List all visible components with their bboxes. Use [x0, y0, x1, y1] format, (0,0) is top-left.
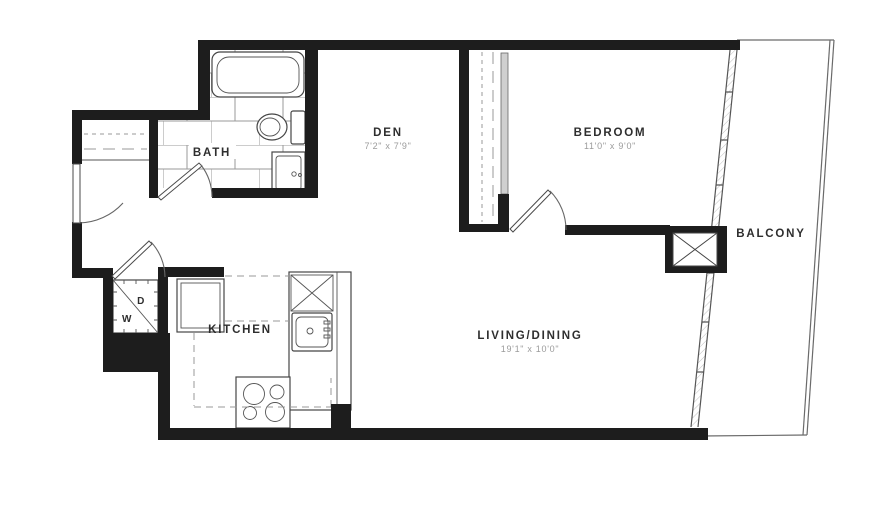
bedroom-name: BEDROOM [574, 127, 647, 139]
wall-closet-top [72, 110, 210, 120]
walls [72, 40, 740, 440]
wall-bath-south [212, 188, 318, 198]
wall-bedroom-south [565, 225, 670, 235]
wall-kitchen-north [158, 267, 224, 277]
entry-closet [82, 134, 149, 160]
kitchen-name: KITCHEN [208, 324, 272, 336]
wall-entry-link [72, 268, 103, 278]
structural-column [673, 233, 717, 266]
den-name: DEN [373, 127, 403, 139]
label-bath: BATH [193, 147, 231, 159]
wall-left-upper [72, 110, 82, 164]
wall-bath-west-lower [149, 118, 158, 198]
wall-bottom [158, 428, 708, 440]
washer-letter: W [122, 314, 132, 325]
floorplan-canvas: D W [0, 0, 896, 512]
label-bedroom: BEDROOM 11'0" x 9'0" [574, 127, 647, 151]
dryer-letter: D [137, 296, 145, 307]
kitchen-sink [292, 313, 332, 351]
entry-door [73, 164, 123, 223]
laundry-closet-door [112, 241, 165, 279]
closet-sliding-door [501, 53, 508, 194]
washer-dryer-unit: D W [113, 280, 158, 333]
balcony-name: BALCONY [736, 228, 805, 240]
living-dining-dims: 19'1" x 10'0" [501, 344, 559, 354]
wall-wd-west [103, 268, 113, 343]
bedroom-dims: 11'0" x 9'0" [584, 141, 636, 151]
wall-wd-east [158, 267, 168, 343]
label-kitchen: KITCHEN [208, 324, 272, 336]
bathroom-sink [272, 152, 305, 194]
wall-counter-stub [331, 404, 351, 432]
bath-name: BATH [193, 147, 231, 159]
wall-den-closet-west [459, 48, 469, 232]
floorplan-root: D W [0, 0, 896, 512]
wall-closet-door-stub [498, 194, 509, 232]
den-dims: 7'2" x 7'9" [364, 141, 411, 151]
label-den: DEN 7'2" x 7'9" [364, 127, 411, 151]
living-dining-name: LIVING/DINING [477, 330, 582, 342]
wall-bath-west-upper [198, 40, 210, 120]
bedroom-door [510, 190, 566, 232]
stove [236, 377, 290, 428]
label-balcony: BALCONY [736, 228, 805, 240]
bathtub [212, 52, 304, 97]
wall-wd-bottom-block [103, 333, 170, 372]
label-living-dining: LIVING/DINING 19'1" x 10'0" [477, 330, 582, 354]
wall-bath-east [305, 48, 318, 198]
